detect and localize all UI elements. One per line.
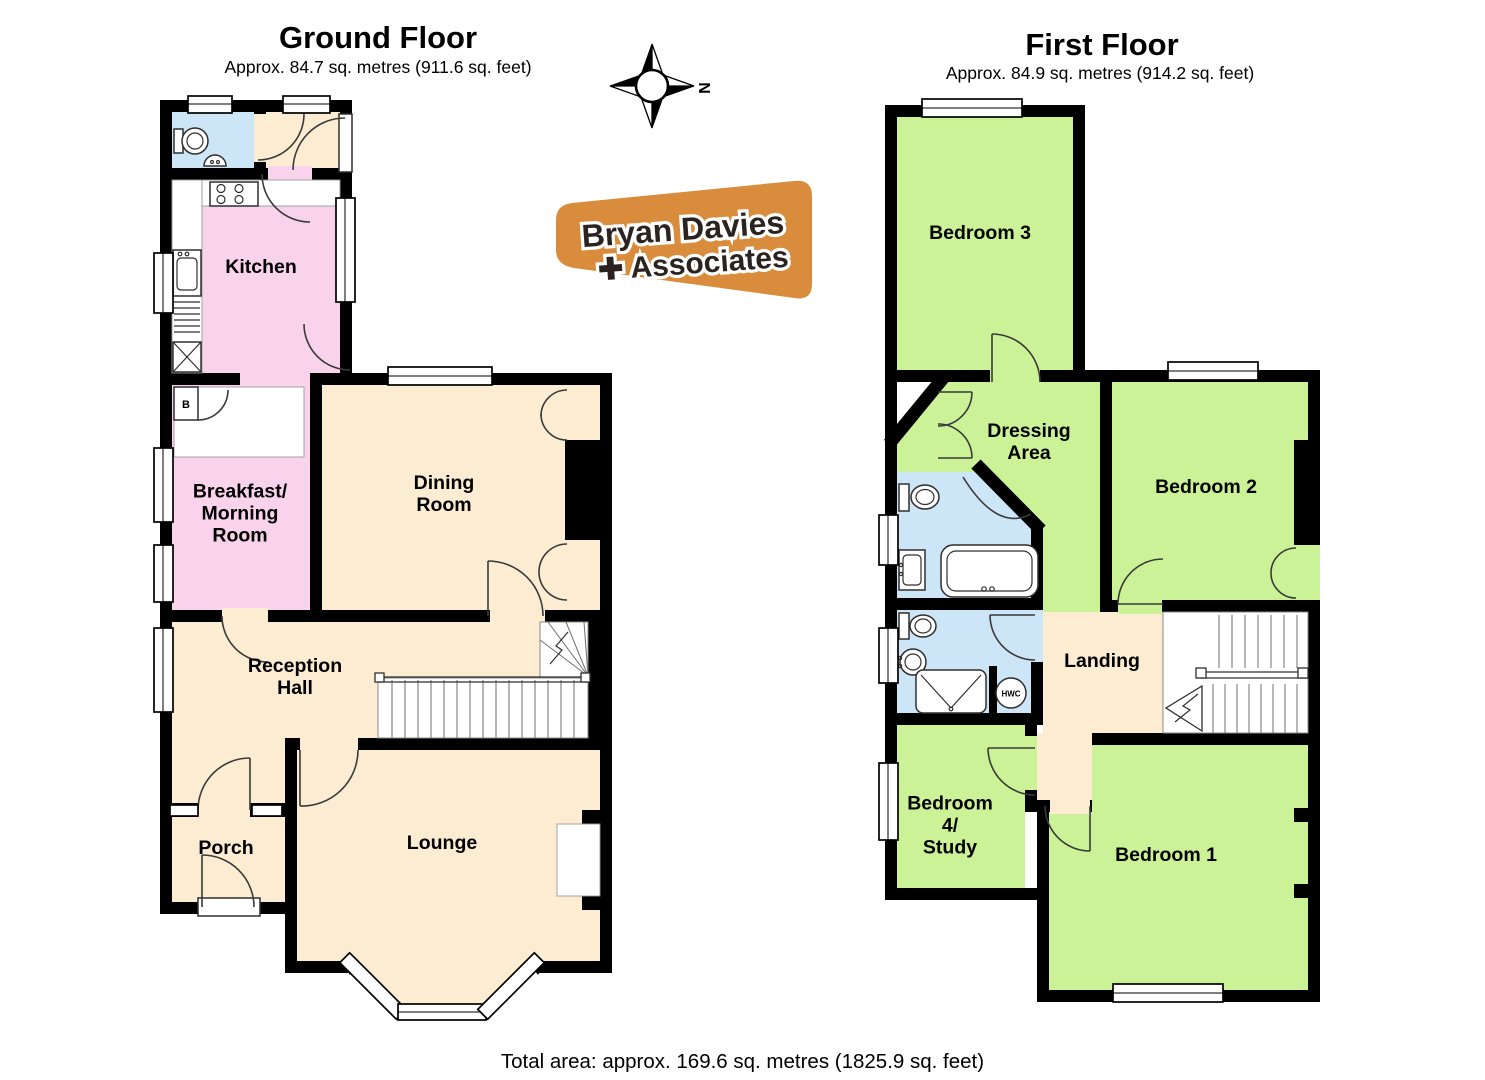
- toilet-icon: [899, 484, 939, 511]
- floorplan-canvas: Ground Floor Approx. 84.7 sq. metres (91…: [0, 0, 1485, 1080]
- appliance-icon: [173, 342, 201, 372]
- shower-icon: [916, 670, 986, 713]
- total-area-text: Total area: approx. 169.6 sq. metres (18…: [0, 1050, 1485, 1074]
- sink-icon: [173, 250, 201, 332]
- room-landing: [1043, 612, 1163, 733]
- label-lounge: Lounge: [407, 832, 477, 854]
- hob-icon: [210, 182, 258, 206]
- basin-icon: [899, 550, 925, 590]
- room-porch: [172, 817, 285, 902]
- label-reception: Reception Hall: [248, 655, 342, 699]
- svg-text:HWC: HWC: [1001, 690, 1020, 699]
- ground-floor-plan: B: [150, 90, 620, 1040]
- bedroom2-closet: [1296, 545, 1320, 600]
- stairs-first: [1163, 612, 1308, 733]
- fireplace: [557, 824, 600, 896]
- label-porch: Porch: [198, 837, 253, 859]
- label-breakfast: Breakfast/ Morning Room: [193, 481, 287, 548]
- first-floor-area: Approx. 84.9 sq. metres (914.2 sq. feet): [946, 63, 1254, 84]
- hall-corridor: [172, 738, 285, 803]
- label-landing: Landing: [1064, 650, 1140, 672]
- svg-text:B: B: [182, 399, 190, 411]
- label-dressing: Dressing Area: [987, 420, 1070, 464]
- dining-alcove-bottom: [565, 540, 600, 610]
- toilet-icon: [174, 128, 208, 154]
- ground-floor-title: Ground Floor: [279, 20, 477, 56]
- ground-floor-area: Approx. 84.7 sq. metres (911.6 sq. feet): [224, 57, 531, 78]
- toilet-icon: [899, 613, 936, 639]
- hwc-icon: HWC: [996, 678, 1026, 708]
- bathtub-icon: [941, 545, 1038, 597]
- dining-alcove-top: [565, 385, 600, 440]
- label-bedroom2: Bedroom 2: [1155, 476, 1257, 498]
- label-dining: Dining Room: [414, 472, 475, 516]
- label-bedroom1: Bedroom 1: [1115, 844, 1217, 866]
- label-kitchen: Kitchen: [225, 256, 297, 278]
- compass-north-label: N: [695, 82, 712, 94]
- label-bedroom3: Bedroom 3: [929, 222, 1031, 244]
- label-bedroom4: Bedroom 4/ Study: [907, 793, 993, 860]
- first-floor-title: First Floor: [1025, 27, 1178, 63]
